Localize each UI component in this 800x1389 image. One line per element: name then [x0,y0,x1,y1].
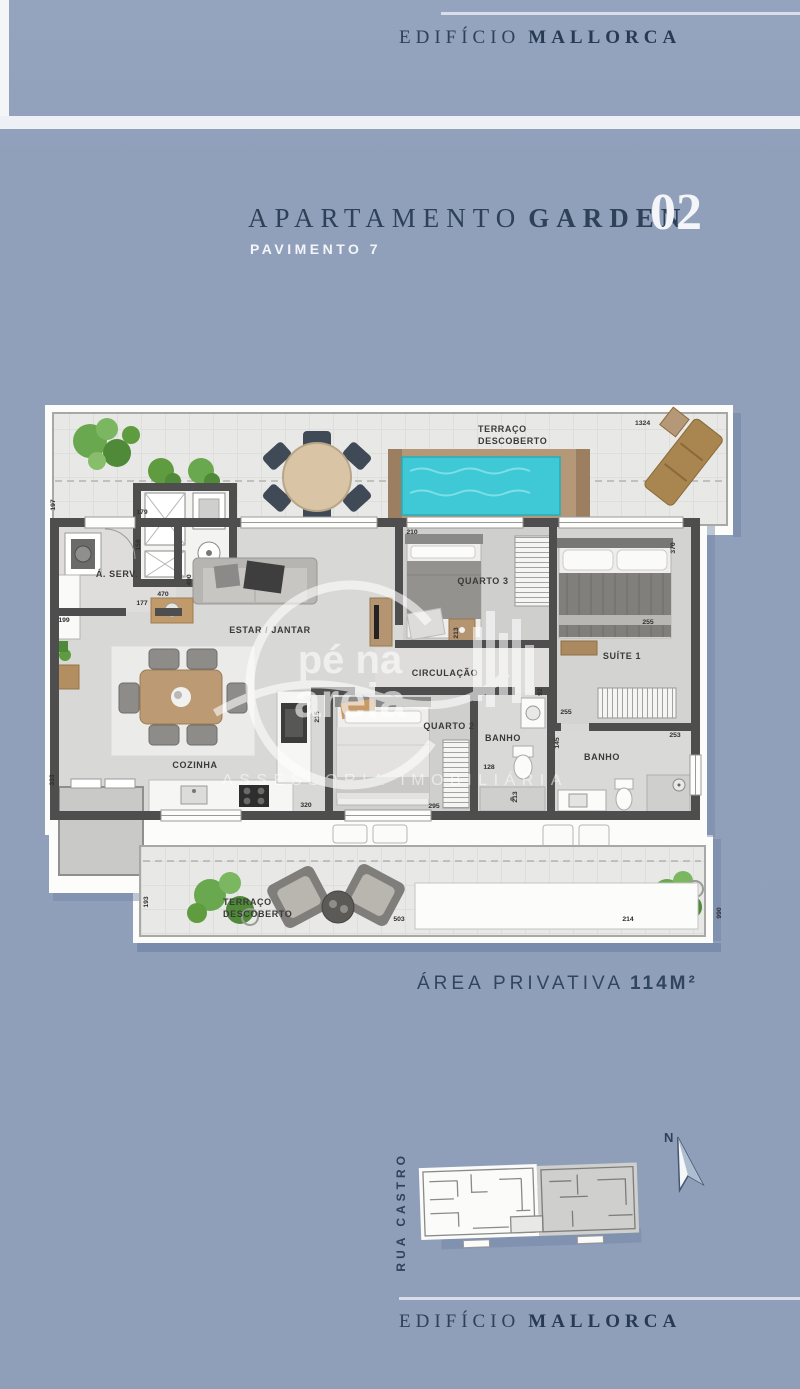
room-label-terrace-top-2: DESCOBERTO [478,436,547,446]
closet-suite [598,688,676,718]
room-label-terrace-bottom-1: TERRAÇO [223,897,272,907]
dim-terrace-bottom-width: 503 [393,916,405,923]
bed-quarto2 [335,697,431,805]
wardrobe-quarto3 [515,536,553,606]
top-rule [441,12,800,15]
north-arrow: N [656,1126,712,1198]
dim-terrace-bottom-right: 214 [622,916,634,923]
dim-banho-meio-width: 128 [483,764,495,771]
room-label-suite1: SUÍTE 1 [603,651,641,661]
dim-suite-right: 370 [670,542,677,554]
room-label-estar: ESTAR / JANTAR [229,625,311,635]
dim-terrace-top: 1324 [635,420,650,427]
building-name-light: EDIFÍCIO [399,27,520,48]
dim-banho-suite-left: 145 [554,737,561,749]
site-plan-entry-right [577,1236,603,1244]
room-label-banho-suite: BANHO [584,752,620,762]
private-area-label: ÁREA PRIVATIVA [417,973,624,994]
planter-box [415,883,698,929]
dim-cozinha-left: 333 [49,774,56,786]
floor-subtitle: PAVIMENTO 7 [250,241,381,257]
bed-suite [557,538,673,655]
dim-quarto3-top: 210 [406,529,418,536]
dim-aserv-bottom: 177 [136,600,148,607]
bed-quarto3 [405,534,483,641]
dim-suite-closet: 255 [642,619,654,626]
dim-terrace-bottom-left: 193 [143,896,150,908]
private-area: ÁREA PRIVATIVA114M² [417,973,698,995]
apartment-title: APARTAMENTOGARDEN [248,203,687,234]
dim-quarto2-bottom: 295 [428,803,440,810]
room-label-terrace-bottom-2: DESCOBERTO [223,909,292,919]
site-plan [412,1146,662,1258]
dim-estar-depth: 490 [186,574,193,586]
private-area-value: 114M² [630,973,698,994]
room-label-cozinha: COZINHA [172,760,217,770]
north-label: N [664,1130,673,1145]
room-label-terrace-top-1: TERRAÇO [478,424,527,434]
storage-room [59,779,143,875]
building-name-top: EDIFÍCIOMALLORCA [399,27,681,49]
dim-terrace-bottom-side: 990 [716,907,723,919]
divider-band [0,116,800,129]
sofa [193,558,317,604]
dim-left-top: 197 [50,499,57,511]
dim-banho-suite-width: 253 [669,732,681,739]
wardrobe-quarto2 [443,740,469,808]
building-name-light: EDIFÍCIO [399,1311,520,1332]
floor-plan: TERRAÇO DESCOBERTO 1324 [45,405,745,965]
dim-cozinha-bottom: 320 [300,802,312,809]
street-name: RUA CASTRO [394,1152,408,1272]
building-name-bottom: EDIFÍCIOMALLORCA [399,1311,681,1333]
unit-number: 02 [650,183,702,242]
bottom-rule [399,1297,800,1300]
dim-aserv-right: 158 [135,539,142,551]
tv-cabinet [370,598,392,646]
dim-banho-suite-top: 255 [560,709,572,716]
building-name-bold: MALLORCA [528,27,681,48]
dim-cozinha-left-top: 199 [58,617,70,624]
dim-estar-table: 470 [157,591,169,598]
dining-set [111,646,255,756]
dim-aserv-top: 179 [136,509,148,516]
site-plan-building-unit [537,1162,639,1235]
room-label-quarto2: QUARTO 2 [423,721,474,731]
building-name-bold: MALLORCA [528,1311,681,1332]
dim-circ-end: 92 [537,688,544,696]
room-label-banho-meio: BANHO [485,733,521,743]
dim-banho-meio-side: 213 [512,791,519,803]
page-edge-sliver [0,0,9,129]
pool [388,449,590,523]
dim-quarto2-left: 215 [314,711,321,723]
room-label-circulacao: CIRCULAÇÃO [412,668,479,678]
flyer-page: EDIFÍCIOMALLORCA APARTAMENTOGARDEN 02 PA… [0,0,800,1389]
terrace-bottom: TERRAÇO DESCOBERTO 193 503 214 990 [140,846,723,936]
dim-quarto3-wall: 213 [453,627,460,639]
site-plan-entry-left [463,1240,489,1248]
room-label-aserv: Á. SERV. [96,569,138,579]
title-apartamento: APARTAMENTO [248,203,522,233]
room-label-quarto3: QUARTO 3 [457,576,508,586]
